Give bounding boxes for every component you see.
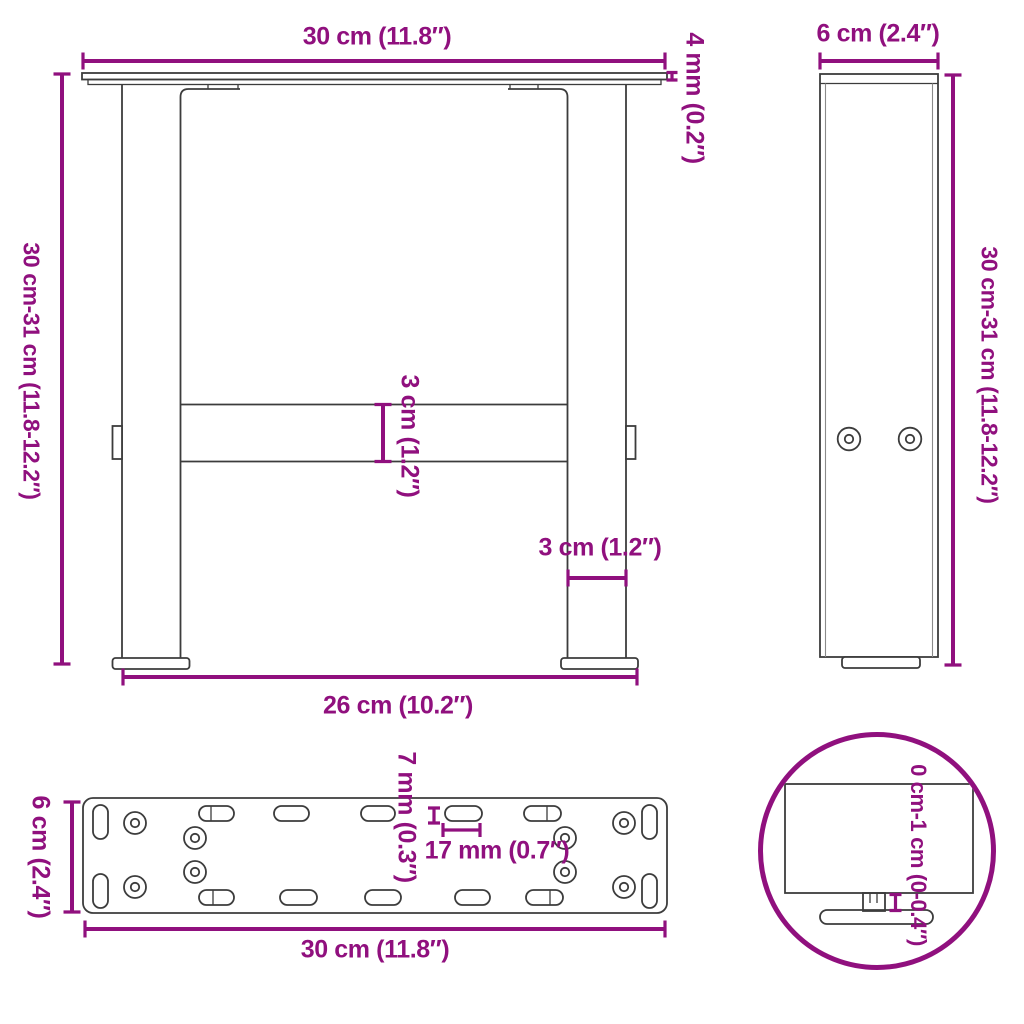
side-height-range-label: 30 cm-31 cm (11.8-12.2″) <box>976 246 1003 503</box>
plate-depth-label: 6 cm (2.4″) <box>26 796 55 919</box>
diagram-linework <box>0 0 1024 1024</box>
front-crossbar-height-label: 3 cm (1.2″) <box>395 375 424 498</box>
front-plate-thickness-label: 4 mm (0.2″) <box>680 32 709 163</box>
detail-circle-drawing <box>761 735 994 968</box>
plate-length-label: 30 cm (11.8″) <box>301 936 450 965</box>
front-feet-span-label: 26 cm (10.2″) <box>323 692 473 721</box>
front-top-width-label: 30 cm (11.8″) <box>303 23 452 52</box>
front-height-range-label: 30 cm-31 cm (11.8-12.2″) <box>18 242 45 499</box>
side-depth-label: 6 cm (2.4″) <box>817 20 940 49</box>
technical-diagram-canvas: 30 cm (11.8″) 4 mm (0.2″) 30 cm-31 cm (1… <box>0 0 1024 1024</box>
front-leg-width-label: 3 cm (1.2″) <box>539 534 662 563</box>
front-view-drawing <box>54 53 678 686</box>
detail-adjustable-range-label: 0 cm-1 cm (0-0.4″) <box>905 764 931 946</box>
plate-hole-width-label: 7 mm (0.3″) <box>392 751 421 882</box>
plate-slot-length-label: 17 mm (0.7″) <box>425 837 570 866</box>
mounting-plate-drawing <box>64 798 668 938</box>
side-view-drawing <box>820 53 962 669</box>
